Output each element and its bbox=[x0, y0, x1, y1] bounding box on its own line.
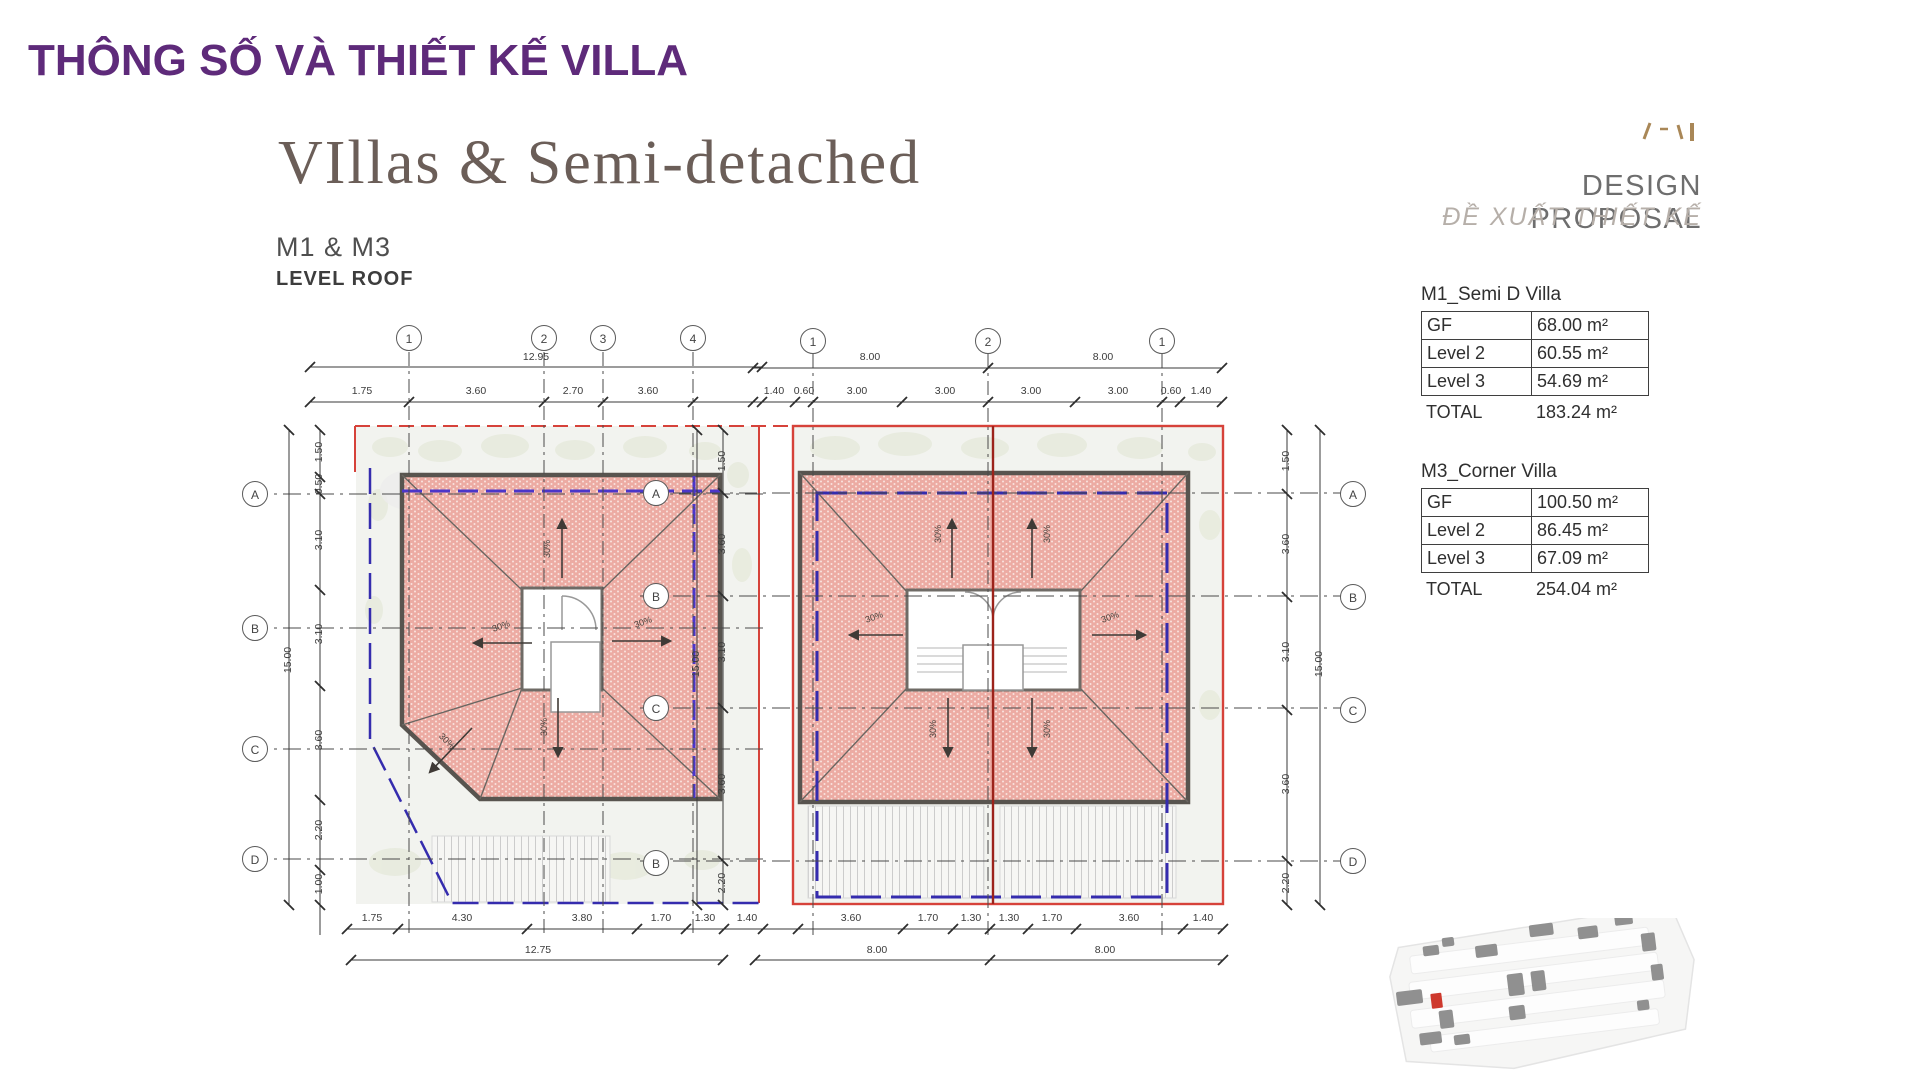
dim-label: 1.70 bbox=[1042, 912, 1062, 924]
table-total-row: TOTAL 254.04 m² bbox=[1421, 579, 1649, 600]
dim-label: 3.00 bbox=[935, 385, 955, 397]
dim-label: 0.60 bbox=[794, 385, 814, 397]
table-row: Level 2 60.55 m² bbox=[1422, 340, 1648, 368]
table-cell: 86.45 m² bbox=[1532, 520, 1648, 541]
grid-bubble: 2 bbox=[975, 328, 1001, 354]
dim-label: 3.10 bbox=[313, 530, 325, 550]
table-cell: 54.69 m² bbox=[1532, 371, 1648, 392]
dim-label: 1.40 bbox=[764, 385, 784, 397]
table-cell: 68.00 m² bbox=[1532, 315, 1648, 336]
dim-label: 3.10 bbox=[313, 624, 325, 644]
dim-label: 12.75 bbox=[525, 944, 551, 956]
slope-label: 30% bbox=[539, 718, 549, 736]
table-total-label: TOTAL bbox=[1421, 402, 1531, 423]
dim-label: 3.60 bbox=[313, 730, 325, 750]
dim-label: 3.60 bbox=[1280, 534, 1292, 554]
design-proposal-subtitle: ĐỀ XUẤT THIẾT KẾ bbox=[1420, 203, 1702, 232]
dim-label: 15.00 bbox=[282, 647, 294, 673]
grid-bubble: 3 bbox=[590, 325, 616, 351]
table-cell: Level 2 bbox=[1422, 517, 1532, 544]
grid-bubble: C bbox=[643, 695, 669, 721]
dim-label: 1.50 bbox=[1280, 451, 1292, 471]
dim-label: 0.50 bbox=[313, 474, 325, 494]
grid-bubble: 1 bbox=[1149, 328, 1175, 354]
grid-bubble: B bbox=[643, 850, 669, 876]
grid-bubble: A bbox=[1340, 481, 1366, 507]
dim-label: 3.10 bbox=[1280, 642, 1292, 662]
dim-label: 1.50 bbox=[313, 442, 325, 462]
site-plan-thumbnail bbox=[1385, 918, 1705, 1073]
dim-label: 2.20 bbox=[1280, 873, 1292, 893]
slope-label: 30% bbox=[542, 540, 552, 558]
table-row: Level 3 67.09 m² bbox=[1422, 545, 1648, 572]
grid-bubble: B bbox=[643, 583, 669, 609]
area-table-m3: M3_Corner Villa GF 100.50 m² Level 2 86.… bbox=[1421, 461, 1649, 600]
grid-bubble: D bbox=[242, 846, 268, 872]
grid-bubble: B bbox=[242, 615, 268, 641]
dim-label: 3.60 bbox=[716, 534, 728, 554]
dim-label: 3.00 bbox=[1108, 385, 1128, 397]
table-row: GF 100.50 m² bbox=[1422, 489, 1648, 517]
slope-label: 30% bbox=[1100, 609, 1120, 625]
slope-label: 30% bbox=[633, 614, 653, 630]
dim-label: 3.10 bbox=[716, 642, 728, 662]
table-cell: GF bbox=[1422, 489, 1532, 516]
dim-label: 1.70 bbox=[918, 912, 938, 924]
dim-label: 1.75 bbox=[362, 912, 382, 924]
table-row: Level 3 54.69 m² bbox=[1422, 368, 1648, 395]
grid-lines bbox=[250, 352, 1360, 935]
dim-label: 1.30 bbox=[961, 912, 981, 924]
dim-label: 15.00 bbox=[1313, 651, 1325, 677]
dim-label: 1.30 bbox=[999, 912, 1019, 924]
slope-label: 30% bbox=[491, 618, 511, 634]
dim-label: 2.20 bbox=[716, 873, 728, 893]
dim-label: 3.60 bbox=[1119, 912, 1139, 924]
slope-label: 30% bbox=[437, 731, 457, 751]
table-row: Level 2 86.45 m² bbox=[1422, 517, 1648, 545]
drawing-heading: VIllas & Semi-detached bbox=[278, 128, 921, 199]
slope-label: 30% bbox=[1042, 525, 1052, 543]
table-cell: 67.09 m² bbox=[1532, 548, 1648, 569]
table-total-label: TOTAL bbox=[1421, 579, 1531, 600]
table-total-value: 254.04 m² bbox=[1531, 579, 1649, 600]
grid-bubble: 2 bbox=[531, 325, 557, 351]
area-table-m1: M1_Semi D Villa GF 68.00 m² Level 2 60.5… bbox=[1421, 284, 1649, 423]
table-row: GF 68.00 m² bbox=[1422, 312, 1648, 340]
dimension-lines bbox=[284, 362, 1325, 965]
grid-bubble: C bbox=[1340, 697, 1366, 723]
dim-label: 3.00 bbox=[1021, 385, 1041, 397]
grid-bubble: 1 bbox=[396, 325, 422, 351]
dim-label: 8.00 bbox=[1095, 944, 1115, 956]
dim-label: 1.40 bbox=[1191, 385, 1211, 397]
grid-bubble: A bbox=[242, 481, 268, 507]
dim-label: 1.00 bbox=[313, 874, 325, 894]
grid-bubble: C bbox=[242, 736, 268, 762]
slope-label: 30% bbox=[928, 720, 938, 738]
table-title: M3_Corner Villa bbox=[1421, 461, 1649, 483]
grid-bubble: B bbox=[1340, 584, 1366, 610]
dim-label: 8.00 bbox=[860, 351, 880, 363]
grid-bubble: D bbox=[1340, 848, 1366, 874]
slide: THÔNG SỐ VÀ THIẾT KẾ VILLA VIllas & Semi… bbox=[0, 0, 1920, 1080]
table-cell: Level 3 bbox=[1422, 368, 1532, 395]
dim-label: 1.40 bbox=[737, 912, 757, 924]
dimension-ticks-vertical bbox=[284, 425, 1325, 910]
page-title: THÔNG SỐ VÀ THIẾT KẾ VILLA bbox=[28, 36, 688, 86]
grid-bubble: A bbox=[643, 480, 669, 506]
slope-label: 30% bbox=[933, 525, 943, 543]
dim-label: 0.60 bbox=[1161, 385, 1181, 397]
table-cell: 60.55 m² bbox=[1532, 343, 1648, 364]
slope-label: 30% bbox=[864, 609, 884, 625]
dim-label: 1.50 bbox=[716, 451, 728, 471]
roof-plan-2 bbox=[800, 473, 1188, 802]
slope-arrows bbox=[430, 520, 1145, 772]
dim-label: 15.00 bbox=[690, 651, 702, 677]
table-cell: Level 2 bbox=[1422, 340, 1532, 367]
dim-label: 3.60 bbox=[466, 385, 486, 397]
table-cell: Level 3 bbox=[1422, 545, 1532, 572]
dim-label: 3.60 bbox=[638, 385, 658, 397]
dim-label: 1.75 bbox=[352, 385, 372, 397]
dim-label: 8.00 bbox=[867, 944, 887, 956]
dim-label: 3.60 bbox=[716, 774, 728, 794]
slope-label: 30% bbox=[1042, 720, 1052, 738]
partial-logo bbox=[1638, 118, 1708, 144]
dim-label: 3.60 bbox=[841, 912, 861, 924]
dim-label: 3.00 bbox=[847, 385, 867, 397]
landscape bbox=[356, 426, 1222, 904]
dim-label: 3.60 bbox=[1280, 774, 1292, 794]
table-cell: 100.50 m² bbox=[1532, 492, 1648, 513]
drawing-level-label: LEVEL ROOF bbox=[276, 268, 413, 291]
dimension-ticks-horizontal bbox=[305, 362, 1228, 965]
table-cell: GF bbox=[1422, 312, 1532, 339]
grid-bubble: 4 bbox=[680, 325, 706, 351]
table-title: M1_Semi D Villa bbox=[1421, 284, 1649, 306]
drawing-models-label: M1 & M3 bbox=[276, 232, 391, 263]
dim-label: 2.70 bbox=[563, 385, 583, 397]
table-total-row: TOTAL 183.24 m² bbox=[1421, 402, 1649, 423]
dim-label: 2.20 bbox=[313, 820, 325, 840]
table-total-value: 183.24 m² bbox=[1531, 402, 1649, 423]
trellis-decks bbox=[432, 806, 1176, 902]
dim-label: 4.30 bbox=[452, 912, 472, 924]
dim-label: 1.70 bbox=[651, 912, 671, 924]
dim-label: 1.30 bbox=[695, 912, 715, 924]
site-plan-highlight bbox=[1430, 993, 1443, 1009]
dim-label: 3.80 bbox=[572, 912, 592, 924]
grid-bubble: 1 bbox=[800, 328, 826, 354]
dim-label: 8.00 bbox=[1093, 351, 1113, 363]
stair-voids bbox=[522, 588, 1080, 712]
dim-label: 12.95 bbox=[523, 351, 549, 363]
lot-boundaries-red bbox=[355, 426, 1223, 904]
dim-label: 1.40 bbox=[1193, 912, 1213, 924]
